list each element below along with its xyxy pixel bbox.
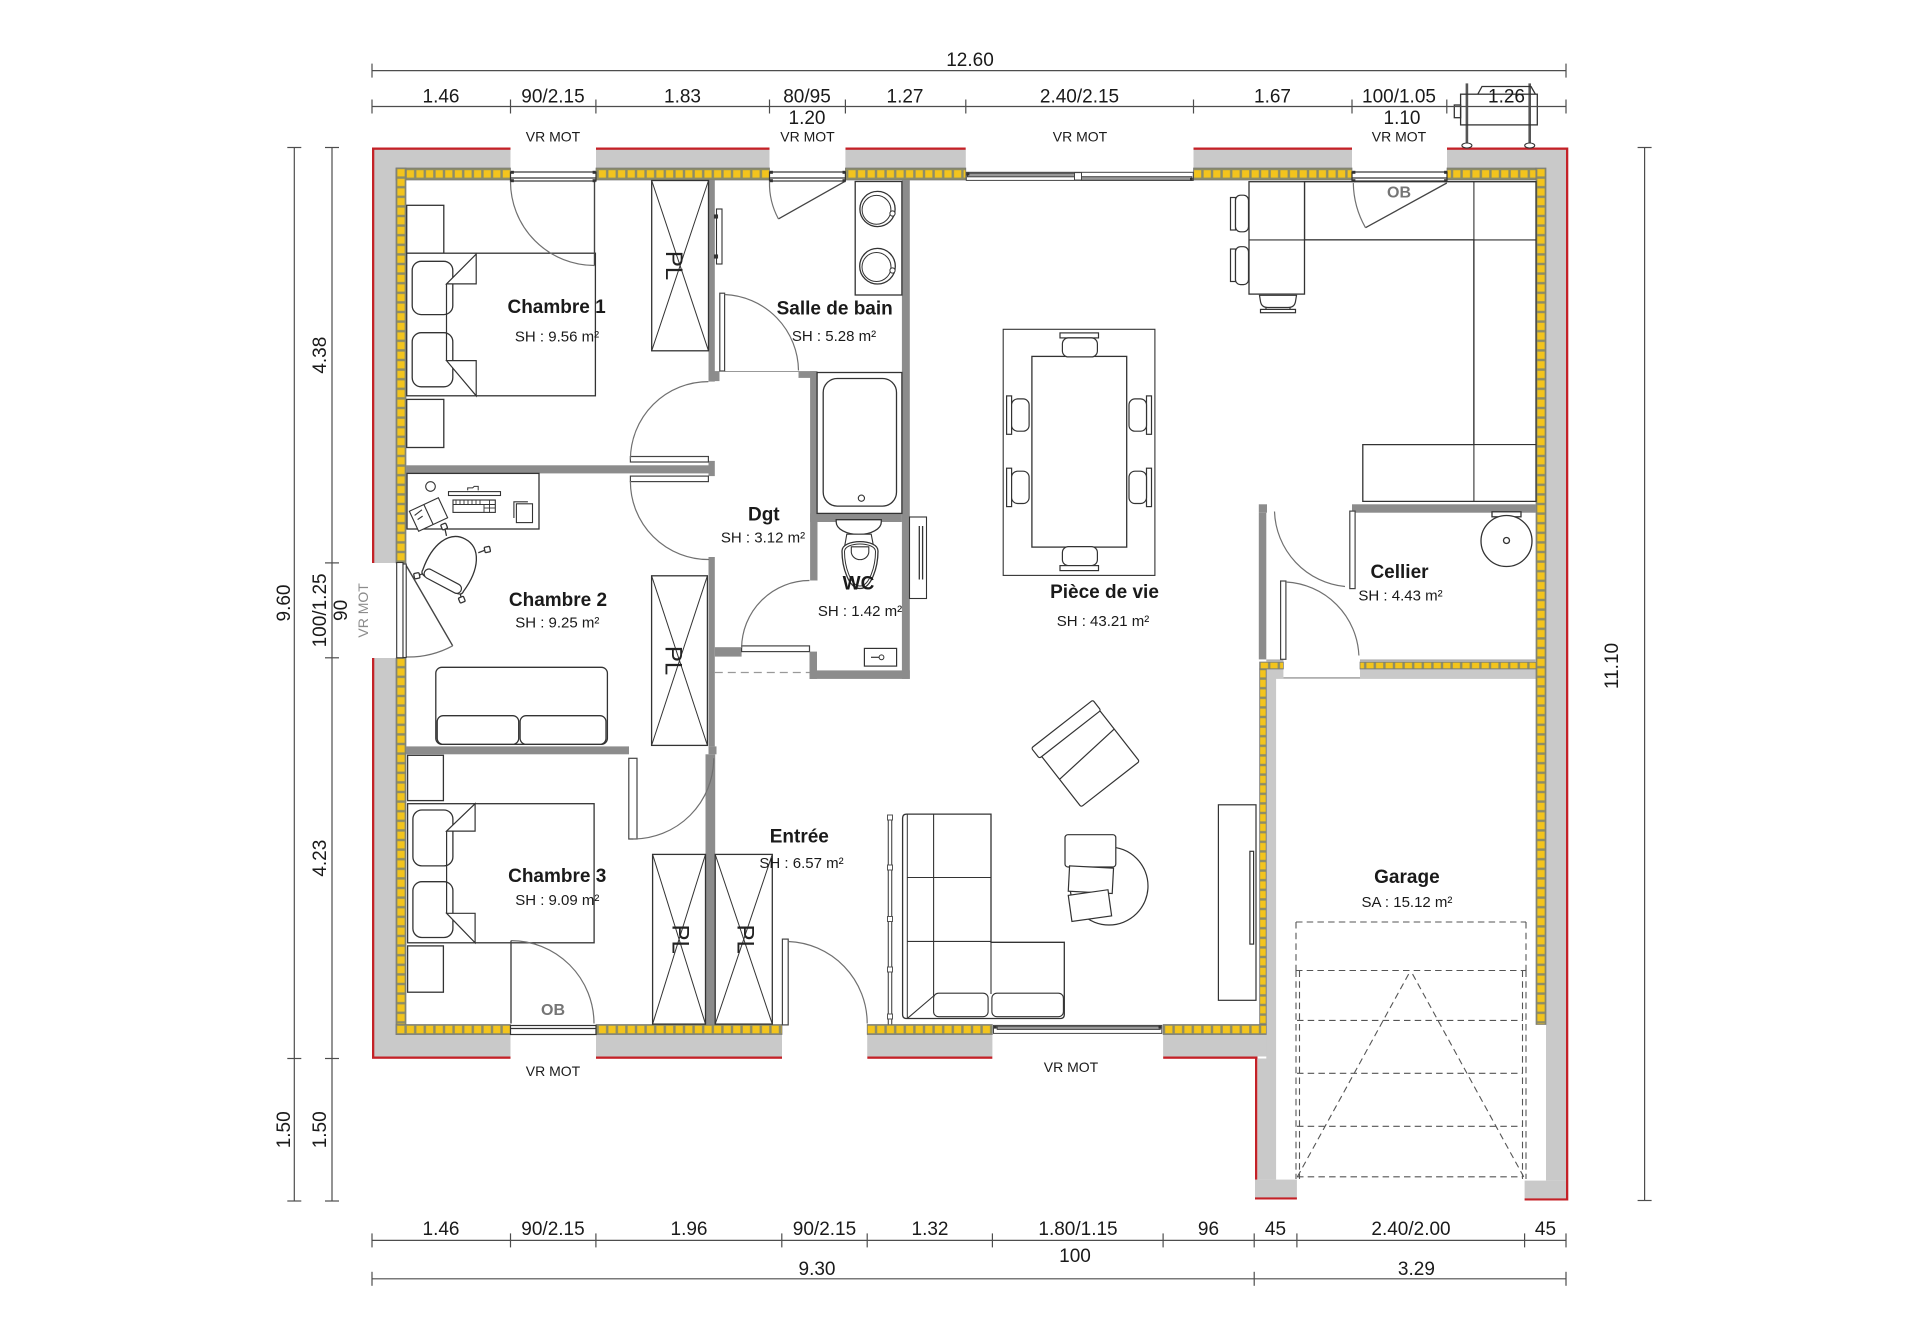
svg-text:VR MOT: VR MOT xyxy=(526,1063,581,1079)
svg-text:1.96: 1.96 xyxy=(671,1219,708,1240)
svg-text:Cellier: Cellier xyxy=(1370,562,1429,583)
svg-text:Chambre 3: Chambre 3 xyxy=(508,866,606,887)
svg-text:11.10: 11.10 xyxy=(1602,643,1623,689)
svg-text:2.40/2.15: 2.40/2.15 xyxy=(1040,87,1119,108)
svg-text:100/1.25: 100/1.25 xyxy=(310,573,331,647)
svg-text:1.10: 1.10 xyxy=(1384,108,1421,129)
svg-text:OB: OB xyxy=(541,1002,565,1019)
svg-text:SH : 43.21 m²: SH : 43.21 m² xyxy=(1057,613,1150,630)
svg-text:1.50: 1.50 xyxy=(310,1111,331,1148)
svg-text:VR MOT: VR MOT xyxy=(526,129,581,145)
svg-text:80/95: 80/95 xyxy=(783,87,831,108)
svg-text:Pièce de vie: Pièce de vie xyxy=(1050,582,1159,603)
svg-text:1.83: 1.83 xyxy=(664,87,701,108)
svg-text:SH : 9.09 m²: SH : 9.09 m² xyxy=(515,892,599,909)
svg-text:VR MOT: VR MOT xyxy=(1053,129,1108,145)
svg-text:Chambre 2: Chambre 2 xyxy=(509,590,607,611)
svg-text:9.30: 9.30 xyxy=(799,1259,836,1280)
svg-text:4.23: 4.23 xyxy=(310,840,331,877)
svg-text:SH : 3.12 m²: SH : 3.12 m² xyxy=(721,530,805,547)
svg-text:90/2.15: 90/2.15 xyxy=(521,87,584,108)
svg-text:1.80/1.15: 1.80/1.15 xyxy=(1038,1219,1117,1240)
svg-text:1.46: 1.46 xyxy=(423,87,460,108)
svg-text:12.60: 12.60 xyxy=(946,50,994,71)
svg-text:Entrée: Entrée xyxy=(770,827,829,848)
svg-text:1.26: 1.26 xyxy=(1488,87,1525,108)
svg-text:Salle de bain: Salle de bain xyxy=(777,299,893,320)
svg-text:PL: PL xyxy=(731,925,758,954)
svg-text:1.32: 1.32 xyxy=(912,1219,949,1240)
svg-text:1.27: 1.27 xyxy=(887,87,924,108)
svg-text:VR MOT: VR MOT xyxy=(1372,129,1427,145)
svg-text:1.20: 1.20 xyxy=(789,108,826,129)
svg-text:SH : 6.57 m²: SH : 6.57 m² xyxy=(759,855,843,872)
svg-text:SA : 15.12 m²: SA : 15.12 m² xyxy=(1362,894,1453,911)
svg-text:VR MOT: VR MOT xyxy=(780,129,835,145)
svg-text:100/1.05: 100/1.05 xyxy=(1362,87,1436,108)
svg-text:WC: WC xyxy=(843,574,875,595)
svg-text:96: 96 xyxy=(1198,1219,1219,1240)
svg-text:VR MOT: VR MOT xyxy=(1044,1059,1099,1075)
svg-text:1.46: 1.46 xyxy=(423,1219,460,1240)
svg-text:SH : 9.25 m²: SH : 9.25 m² xyxy=(515,615,599,632)
svg-text:9.60: 9.60 xyxy=(274,585,295,622)
svg-text:100: 100 xyxy=(1059,1246,1091,1267)
svg-text:PL: PL xyxy=(667,925,694,954)
svg-text:90/2.15: 90/2.15 xyxy=(793,1219,856,1240)
svg-text:1.50: 1.50 xyxy=(274,1111,295,1148)
svg-text:SH : 9.56 m²: SH : 9.56 m² xyxy=(515,329,599,346)
svg-text:VR MOT: VR MOT xyxy=(355,583,371,638)
svg-text:SH : 1.42 m²: SH : 1.42 m² xyxy=(818,603,902,620)
svg-text:90/2.15: 90/2.15 xyxy=(521,1219,584,1240)
svg-text:Dgt: Dgt xyxy=(748,505,780,526)
svg-text:PL: PL xyxy=(660,646,687,675)
svg-text:Garage: Garage xyxy=(1374,867,1439,888)
svg-text:OB: OB xyxy=(1387,185,1411,202)
svg-text:4.38: 4.38 xyxy=(310,337,331,374)
svg-text:SH : 5.28 m²: SH : 5.28 m² xyxy=(792,328,876,345)
svg-text:SH : 4.43 m²: SH : 4.43 m² xyxy=(1358,588,1442,605)
svg-text:45: 45 xyxy=(1535,1219,1556,1240)
svg-text:45: 45 xyxy=(1265,1219,1286,1240)
svg-text:90: 90 xyxy=(331,600,352,621)
svg-text:1.67: 1.67 xyxy=(1254,87,1291,108)
svg-text:PL: PL xyxy=(660,251,687,280)
svg-text:2.40/2.00: 2.40/2.00 xyxy=(1371,1219,1450,1240)
svg-text:Chambre 1: Chambre 1 xyxy=(507,297,606,318)
svg-text:3.29: 3.29 xyxy=(1398,1259,1435,1280)
